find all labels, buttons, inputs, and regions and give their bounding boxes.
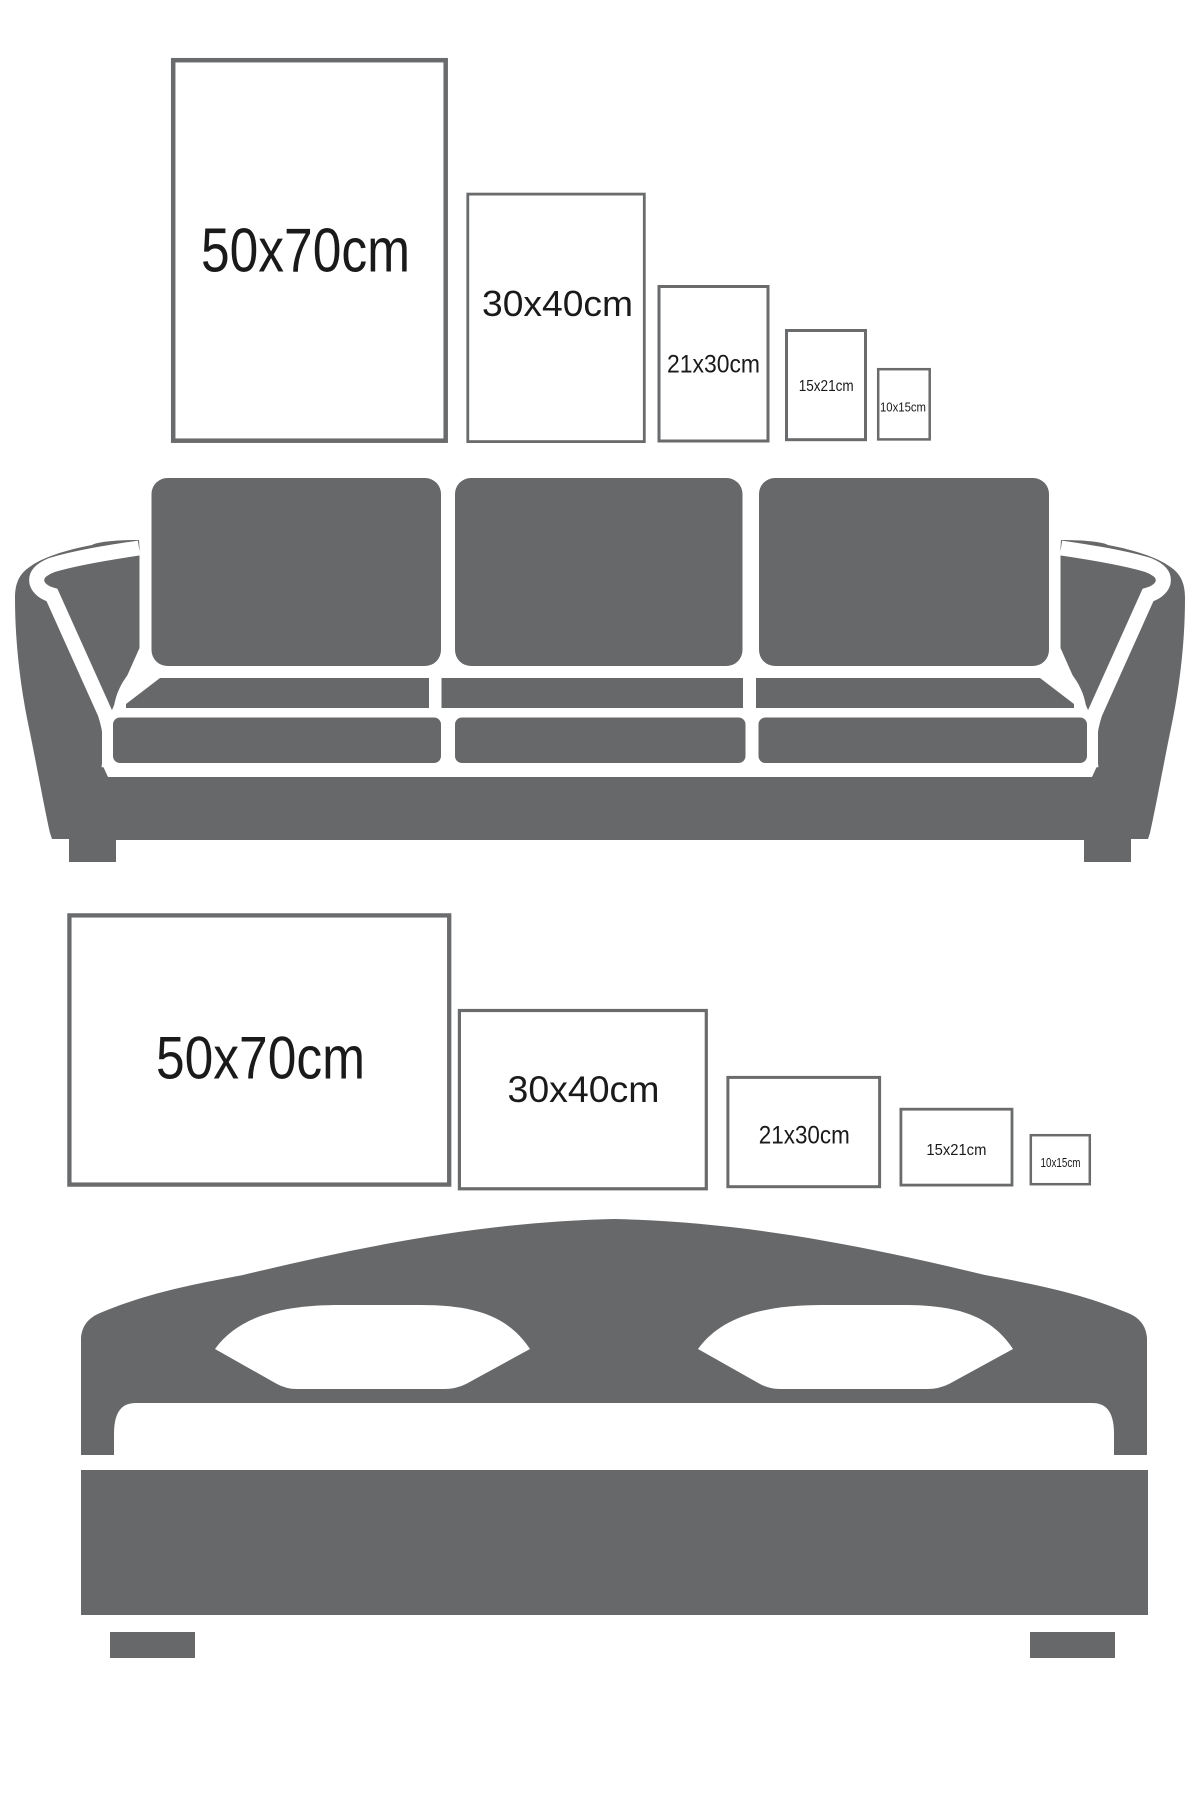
svg-text:30x40cm: 30x40cm [482, 283, 633, 324]
svg-text:21x30cm: 21x30cm [667, 351, 760, 379]
svg-text:10x15cm: 10x15cm [1041, 1155, 1081, 1170]
svg-text:50x70cm: 50x70cm [156, 1024, 365, 1091]
svg-text:15x21cm: 15x21cm [799, 378, 854, 395]
svg-text:10x15cm: 10x15cm [880, 400, 926, 415]
svg-text:15x21cm: 15x21cm [926, 1142, 986, 1159]
svg-text:50x70cm: 50x70cm [201, 216, 410, 285]
svg-text:30x40cm: 30x40cm [508, 1069, 660, 1110]
svg-text:21x30cm: 21x30cm [759, 1122, 850, 1150]
